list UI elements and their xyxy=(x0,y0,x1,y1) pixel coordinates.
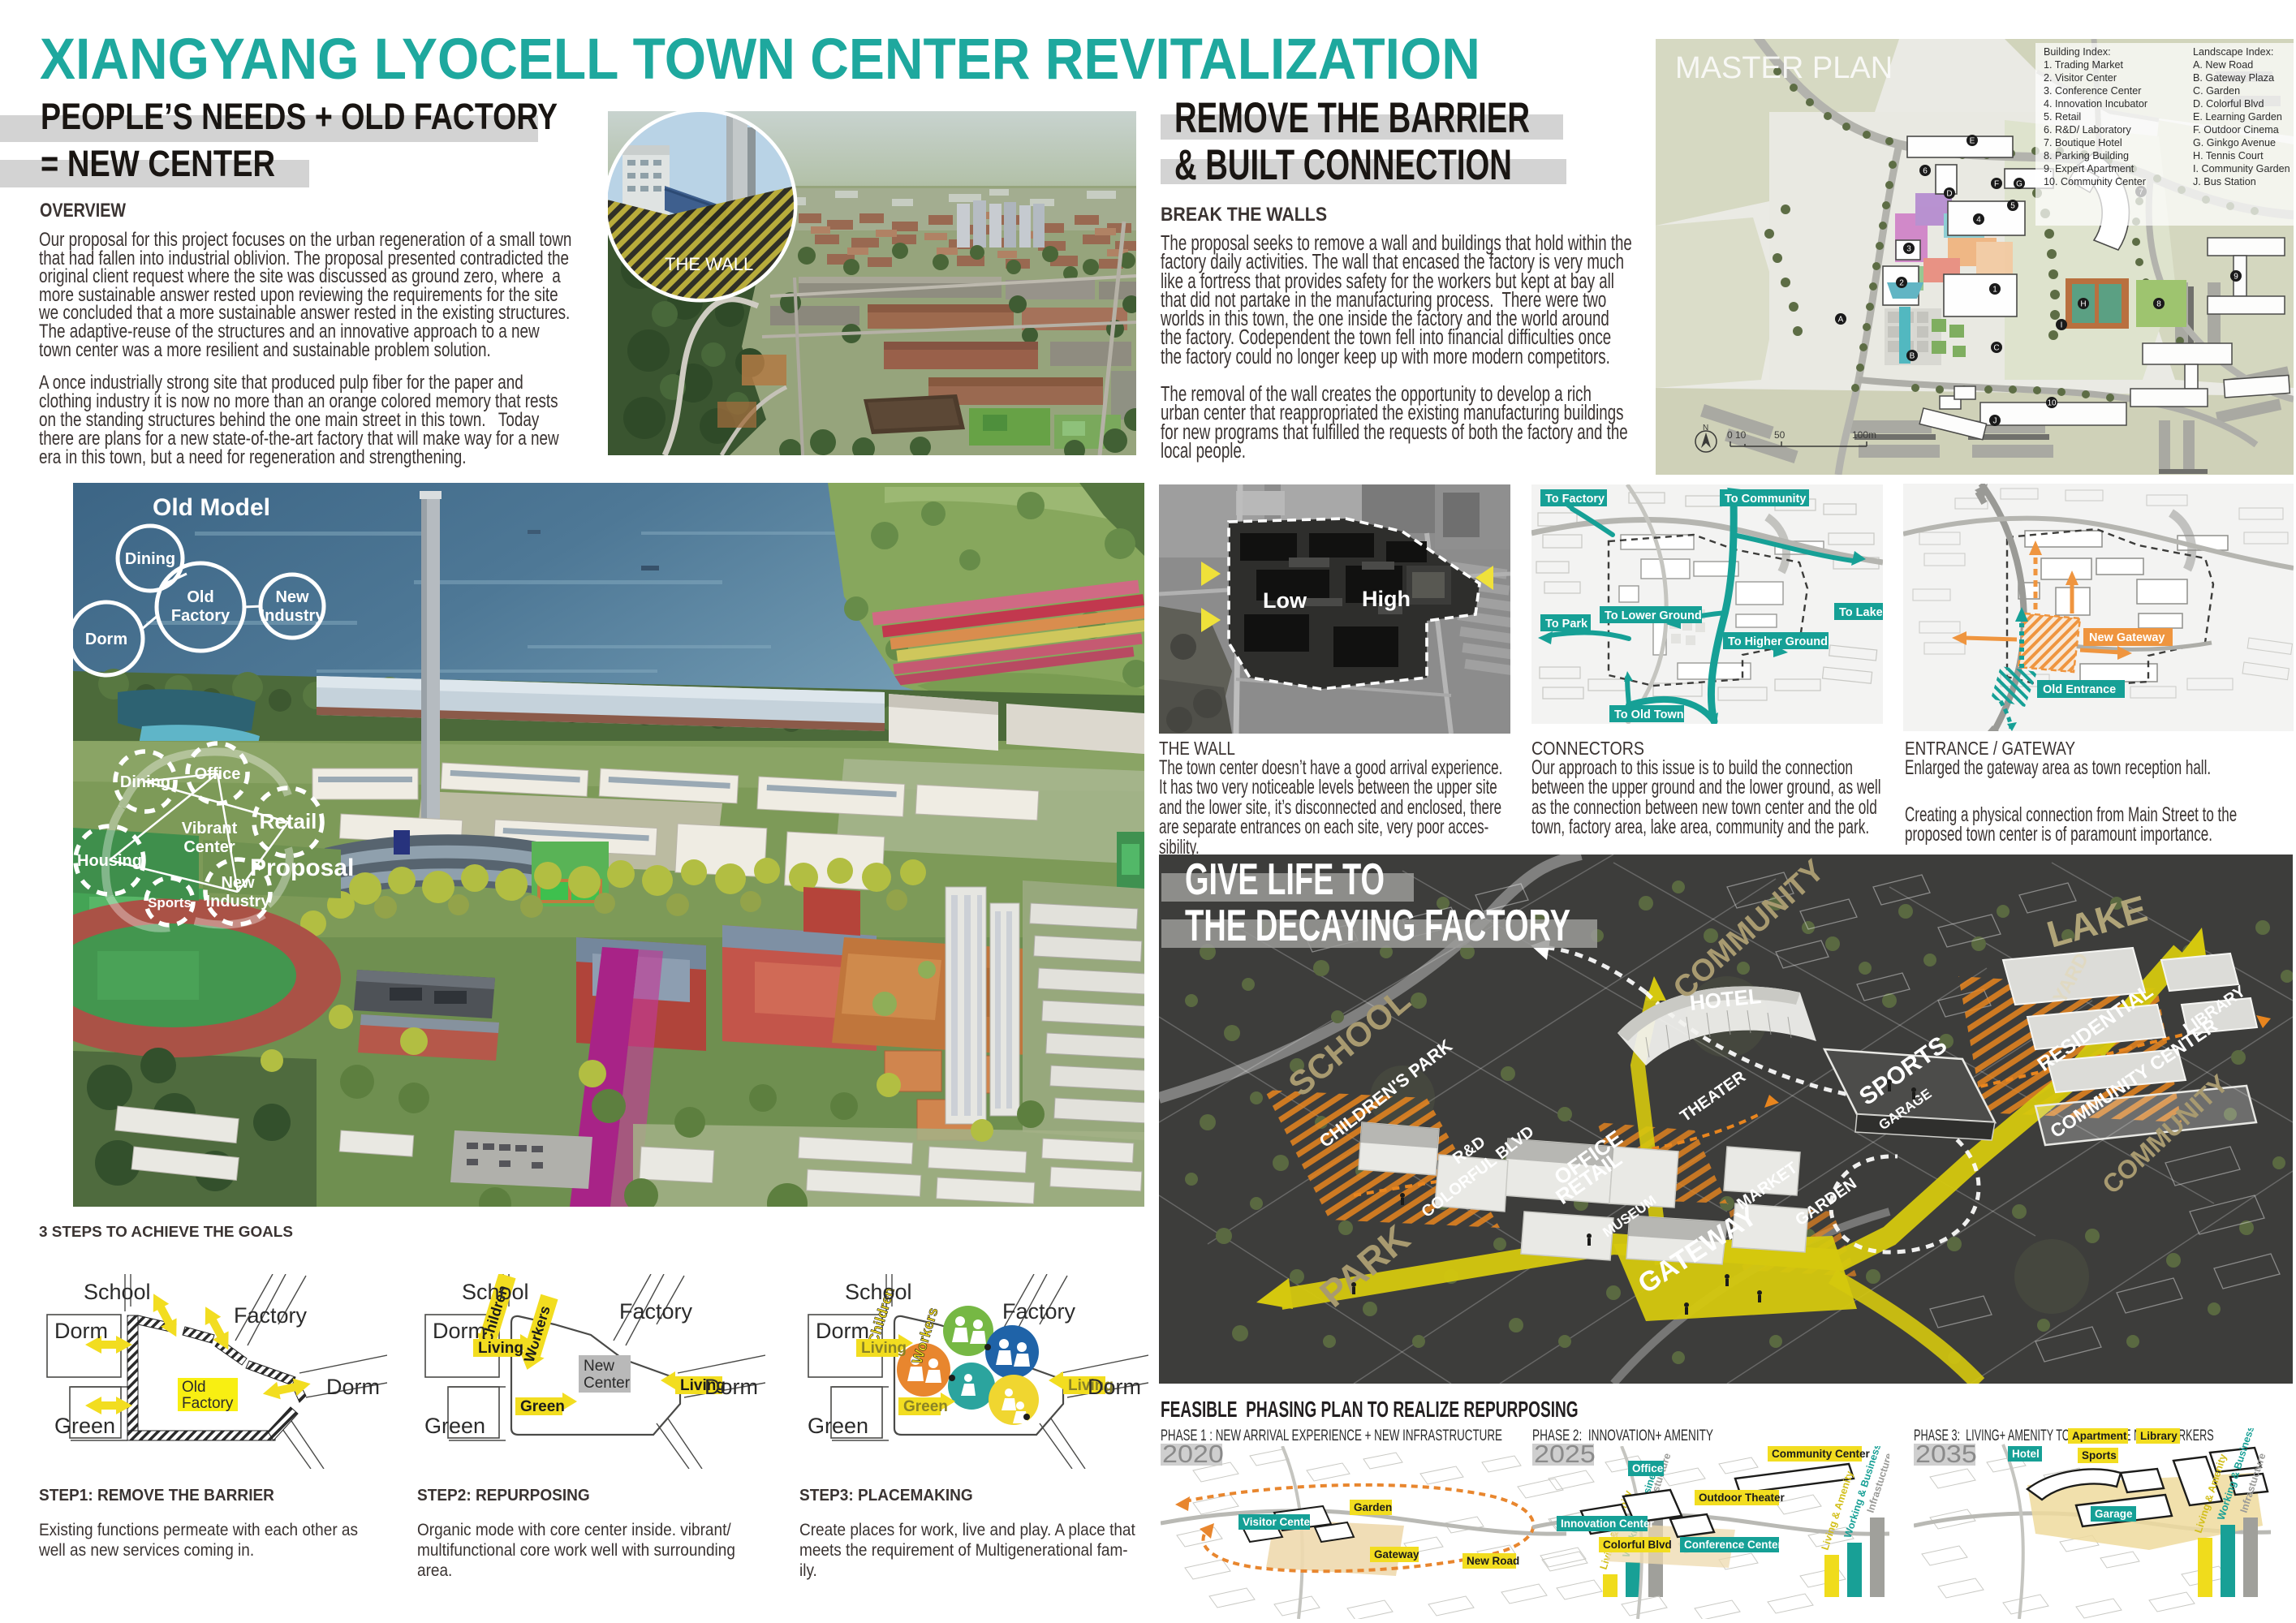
svg-text:Industry: Industry xyxy=(261,607,325,625)
svg-text:C: C xyxy=(1993,344,1999,353)
svg-text:10. Community Center: 10. Community Center xyxy=(2044,176,2146,187)
svg-text:G. Ginkgo Avenue: G. Ginkgo Avenue xyxy=(2193,137,2276,149)
svg-text:Dorm: Dorm xyxy=(326,1375,380,1399)
svg-text:Dining: Dining xyxy=(125,550,175,568)
svg-text:Factory: Factory xyxy=(234,1303,308,1328)
svg-text:Conference Center: Conference Center xyxy=(1684,1539,1783,1551)
svg-text:B: B xyxy=(1910,352,1915,361)
svg-text:Green: Green xyxy=(903,1398,948,1415)
svg-text:To Higher Ground: To Higher Ground xyxy=(1728,635,1828,648)
svg-text:Dorm: Dorm xyxy=(1088,1375,1141,1399)
svg-text:D: D xyxy=(1946,190,1952,199)
svg-text:Green: Green xyxy=(520,1398,565,1415)
svg-text:New Gateway: New Gateway xyxy=(2089,631,2165,644)
svg-text:Hotel: Hotel xyxy=(2012,1448,2040,1460)
svg-text:New: New xyxy=(584,1358,614,1375)
svg-text:3: 3 xyxy=(1906,245,1911,254)
svg-text:School: School xyxy=(84,1280,151,1304)
svg-text:1. Trading Market: 1. Trading Market xyxy=(2044,59,2123,71)
svg-text:Low: Low xyxy=(1263,588,1307,613)
svg-text:5: 5 xyxy=(2010,202,2015,211)
svg-text:7. Boutique Hotel: 7. Boutique Hotel xyxy=(2044,137,2122,149)
svg-text:Dining: Dining xyxy=(120,773,170,791)
svg-text:1: 1 xyxy=(1992,286,1997,295)
svg-text:J. Bus Station: J. Bus Station xyxy=(2193,176,2256,187)
svg-text:Outdoor Theater: Outdoor Theater xyxy=(1699,1492,1785,1504)
svg-text:9. Expert Apartment: 9. Expert Apartment xyxy=(2044,163,2134,174)
svg-text:Factory: Factory xyxy=(171,607,230,625)
svg-text:Gateway: Gateway xyxy=(1374,1548,1419,1561)
svg-text:School: School xyxy=(845,1280,912,1304)
svg-text:Factory: Factory xyxy=(1002,1299,1076,1324)
svg-text:Old Model: Old Model xyxy=(153,494,270,521)
svg-text:Garden: Garden xyxy=(1354,1501,1392,1513)
svg-text:Library: Library xyxy=(2140,1430,2178,1442)
svg-text:Factory: Factory xyxy=(619,1299,693,1324)
svg-text:School: School xyxy=(462,1280,529,1304)
svg-text:Green: Green xyxy=(54,1414,115,1438)
svg-text:9: 9 xyxy=(2234,273,2238,282)
svg-text:Center: Center xyxy=(584,1375,631,1392)
svg-text:6: 6 xyxy=(1923,167,1928,176)
svg-text:Housing: Housing xyxy=(77,852,142,870)
svg-text:B. Gateway Plaza: B. Gateway Plaza xyxy=(2193,72,2274,84)
svg-text:A: A xyxy=(1838,316,1844,325)
svg-text:To Old Town: To Old Town xyxy=(1614,708,1684,721)
svg-text:Workers: Workers xyxy=(521,1304,554,1364)
svg-text:To Lake: To Lake xyxy=(1839,606,1883,619)
svg-text:Green: Green xyxy=(424,1414,485,1438)
svg-text:H. Tennis Court: H. Tennis Court xyxy=(2193,150,2264,161)
svg-text:F: F xyxy=(1994,180,1999,189)
svg-text:D. Colorful Blvd: D. Colorful Blvd xyxy=(2193,98,2264,110)
svg-text:MASTER PLAN: MASTER PLAN xyxy=(1675,51,1893,85)
svg-text:E: E xyxy=(1970,137,1975,146)
svg-text:Dorm: Dorm xyxy=(433,1319,486,1343)
svg-text:C. Garden: C. Garden xyxy=(2193,85,2240,97)
svg-text:H: H xyxy=(2080,300,2086,309)
svg-text:Center: Center xyxy=(183,838,235,856)
svg-text:0 10: 0 10 xyxy=(1727,429,1747,441)
svg-text:To Community: To Community xyxy=(1725,493,1806,506)
svg-text:Vibrant: Vibrant xyxy=(182,820,238,837)
svg-text:G: G xyxy=(2016,180,2022,189)
svg-text:Factory: Factory xyxy=(182,1395,234,1412)
svg-text:Innovation Center: Innovation Center xyxy=(1561,1518,1655,1530)
svg-text:Visitor Center: Visitor Center xyxy=(1243,1516,1315,1528)
svg-text:Office: Office xyxy=(1632,1462,1664,1474)
svg-text:Sports: Sports xyxy=(2082,1449,2117,1462)
svg-text:Apartment: Apartment xyxy=(2072,1430,2127,1442)
svg-text:Dorm: Dorm xyxy=(704,1375,758,1399)
svg-text:High: High xyxy=(1362,587,1411,611)
svg-text:Old: Old xyxy=(182,1379,206,1396)
svg-text:J: J xyxy=(1993,417,1997,426)
svg-text:Industry: Industry xyxy=(206,893,271,911)
svg-text:100m: 100m xyxy=(1852,429,1876,441)
svg-text:I. Community Garden: I. Community Garden xyxy=(2193,163,2290,174)
svg-text:Retail: Retail xyxy=(260,809,317,833)
svg-text:2. Visitor Center: 2. Visitor Center xyxy=(2044,72,2117,84)
svg-text:Office: Office xyxy=(195,765,241,783)
svg-text:A. New Road: A. New Road xyxy=(2193,59,2253,71)
svg-text:Colorful Blvd: Colorful Blvd xyxy=(1603,1539,1672,1551)
svg-text:To Factory: To Factory xyxy=(1545,493,1605,506)
svg-text:GIVE LIFE TO: GIVE LIFE TO xyxy=(1185,855,1385,904)
svg-text:50: 50 xyxy=(1774,429,1786,441)
svg-text:Building Index:: Building Index: xyxy=(2044,46,2111,58)
svg-text:Garage: Garage xyxy=(2095,1508,2133,1520)
svg-text:Dorm: Dorm xyxy=(85,631,127,648)
svg-text:Landscape Index:: Landscape Index: xyxy=(2193,46,2273,58)
svg-text:N: N xyxy=(1703,424,1708,433)
svg-text:E. Learning Garden: E. Learning Garden xyxy=(2193,111,2282,123)
svg-text:F. Outdoor Cinema: F. Outdoor Cinema xyxy=(2193,124,2279,136)
svg-text:4: 4 xyxy=(1976,216,1981,225)
svg-text:Dorm: Dorm xyxy=(816,1319,869,1343)
svg-text:Old: Old xyxy=(187,588,213,606)
svg-text:8: 8 xyxy=(2156,300,2161,309)
svg-text:THE WALL: THE WALL xyxy=(665,254,753,274)
svg-text:Green: Green xyxy=(808,1414,868,1438)
svg-text:Community Center: Community Center xyxy=(1772,1448,1871,1460)
svg-text:6. R&D/ Laboratory: 6. R&D/ Laboratory xyxy=(2044,124,2132,136)
svg-text:2: 2 xyxy=(1899,279,1904,288)
svg-text:New Road: New Road xyxy=(1467,1555,1519,1567)
svg-text:Dorm: Dorm xyxy=(54,1319,108,1343)
svg-text:THE DECAYING FACTORY: THE DECAYING FACTORY xyxy=(1185,900,1570,950)
svg-text:5. Retail: 5. Retail xyxy=(2044,111,2081,123)
svg-text:Sports: Sports xyxy=(148,895,192,911)
svg-text:10: 10 xyxy=(2047,399,2057,408)
svg-text:To Park: To Park xyxy=(1545,618,1588,631)
svg-text:I: I xyxy=(2061,321,2063,330)
svg-text:Old Entrance: Old Entrance xyxy=(2043,683,2116,696)
svg-text:New: New xyxy=(275,588,309,606)
svg-text:8. Parking Building: 8. Parking Building xyxy=(2044,150,2129,161)
svg-text:To Lower Ground: To Lower Ground xyxy=(1605,609,1702,622)
svg-text:3. Conference Center: 3. Conference Center xyxy=(2044,85,2141,97)
svg-text:New: New xyxy=(221,874,255,892)
svg-text:4. Innovation Incubator: 4. Innovation Incubator xyxy=(2044,98,2147,110)
